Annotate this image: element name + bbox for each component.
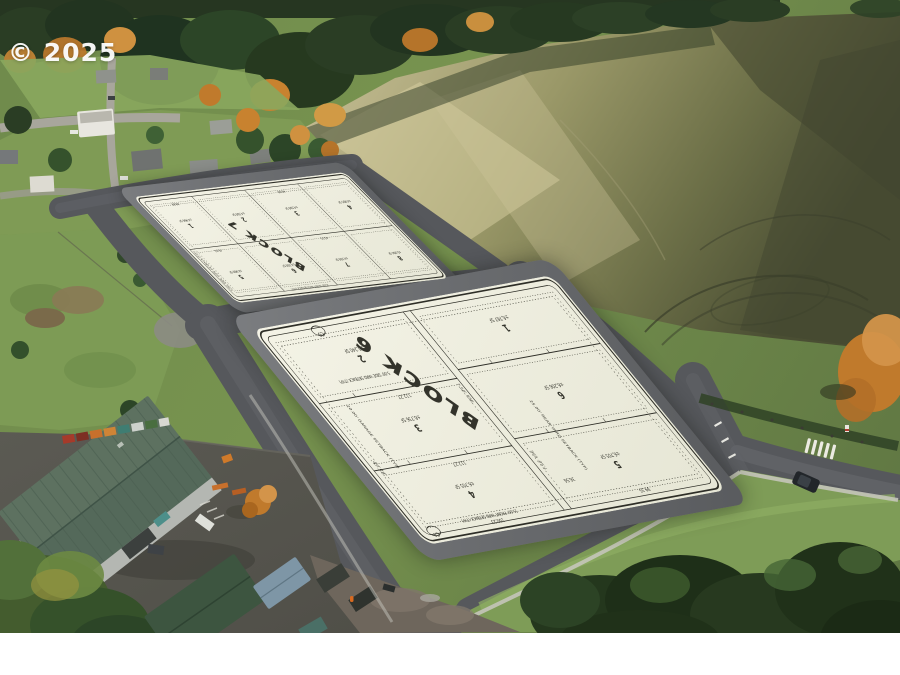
copyright-watermark: © 2025 [8,38,117,67]
worker-figure [350,596,354,602]
white-letterbox [0,633,900,675]
aerial-photo: BLOCK 7 1±4,996 SF 2±4,500 SF 3±4,500 SF… [0,0,900,633]
street-sign-stripe [845,429,849,431]
parked-car [120,176,128,180]
orange-tree [259,485,277,503]
parked-car [108,96,115,100]
parked-car [70,130,78,134]
listing-photo-stage: BLOCK 7 1±4,996 SF 2±4,500 SF 3±4,500 SF… [0,0,900,675]
orange-tree [242,502,258,518]
pasture-left [0,228,206,430]
tree-shadow [820,384,856,400]
